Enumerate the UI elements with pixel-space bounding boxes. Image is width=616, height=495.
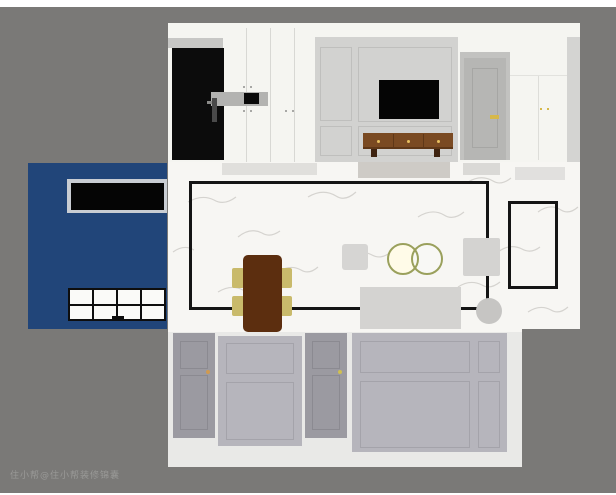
wall-right-strip [567,37,580,162]
dim-door-handle [338,370,342,374]
console-knob [437,140,440,143]
cabinet-seam [270,28,271,162]
dim-cabinet-panel [478,381,500,448]
console-divider [393,134,394,147]
sofa [360,287,461,329]
dim-door-panel [312,375,340,430]
door-header-strip [168,38,223,48]
watermark: 住小帮@住小帮装修锦囊 [10,468,120,481]
window-pane [118,290,140,304]
wardrobe-knob [547,108,549,110]
cabinet-knob [250,110,252,112]
cabinet-knob [243,86,245,88]
side-table [342,244,368,270]
armchair [463,238,500,276]
display-shelf [211,92,268,106]
cabinet-knob [250,86,252,88]
wardrobe-seam [538,75,539,160]
interior-door-handle [490,115,499,119]
pendant-rings [385,241,445,278]
dim-door-panel [180,375,208,430]
interior-door-panel [472,68,498,148]
tv-console-leg [371,149,377,157]
dining-table [243,255,282,332]
wardrobe-seam-horizontal [510,75,567,76]
wall-molding [320,47,352,121]
console-knob [407,140,410,143]
shelf-black-box [244,93,259,104]
wall-molding [320,126,352,156]
cabinet-seam [294,28,295,162]
floor-lamp [476,298,502,324]
floorplan-render: 住小帮@住小帮装修锦囊 [0,0,616,495]
console-divider [423,134,424,147]
floor-mat [358,162,450,178]
window-pane [142,306,164,320]
dim-cabinet-panel [226,382,294,440]
wardrobe-knob [540,108,542,110]
dim-cabinet-panel [360,341,470,373]
dim-door-panel [180,341,208,369]
window-pane [70,290,92,304]
dim-cabinet-panel [226,343,294,374]
window-pane [70,306,92,320]
window-handle [112,316,124,321]
dim-door-panel [312,341,340,369]
floor-mat [463,163,500,175]
dim-cabinet-panel [478,341,500,373]
small-rug-outline [508,201,558,289]
dim-door-handle [206,370,210,374]
console-knob [377,140,380,143]
television [379,80,439,119]
window-pane [142,290,164,304]
background-patch [522,329,616,493]
floor-mat [222,163,317,175]
window-pane [94,290,116,304]
tv-console-leg [434,149,440,157]
cabinet-knob [243,110,245,112]
floor-mat [515,167,565,180]
cabinet-knob [285,110,287,112]
wall-television [71,183,164,210]
door-handle-tick [207,101,212,104]
dim-cabinet-panel [360,381,470,448]
cabinet-knob [292,110,294,112]
door-handle [212,98,217,122]
